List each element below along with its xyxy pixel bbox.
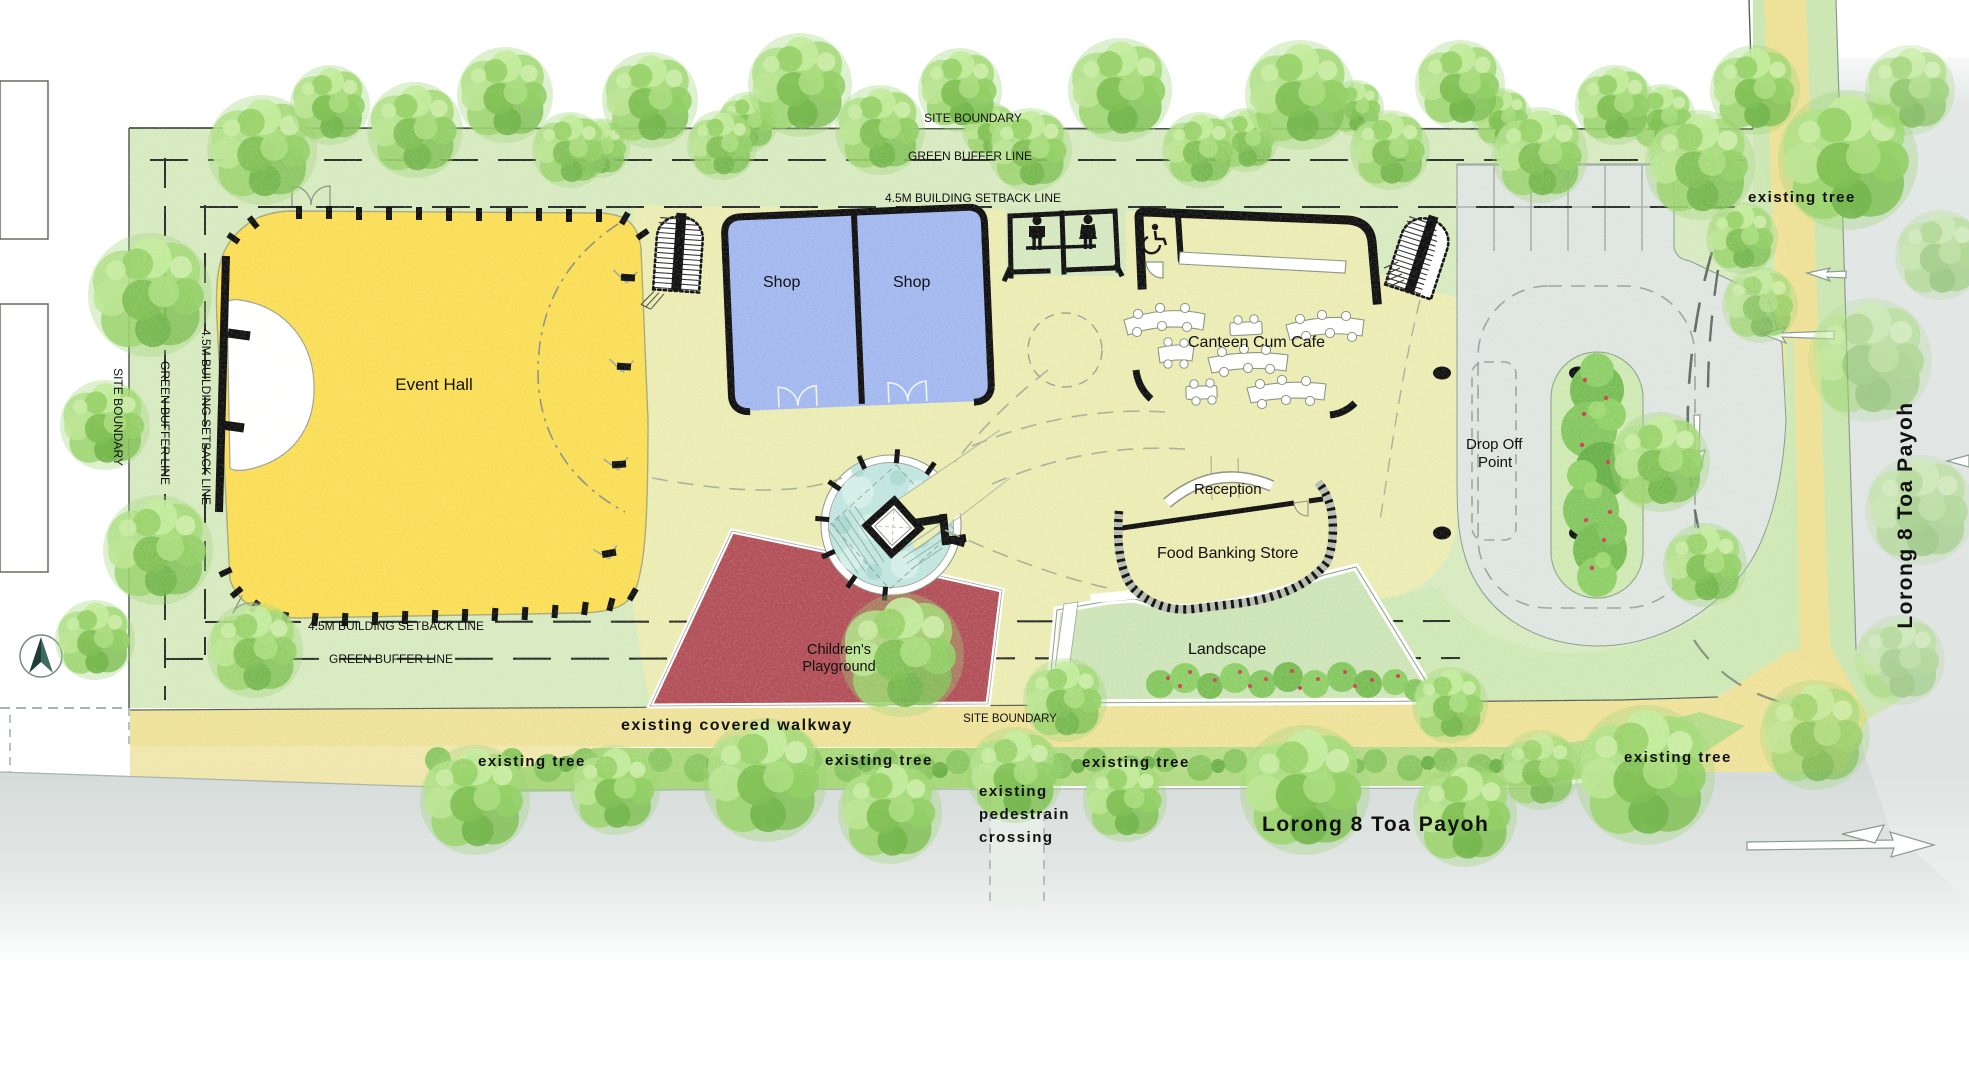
svg-text:Lorong 8 Toa Payoh: Lorong 8 Toa Payoh (1262, 813, 1489, 836)
svg-text:existing tree: existing tree (1624, 749, 1732, 766)
svg-text:Lorong 8 Toa Payoh: Lorong 8 Toa Payoh (1894, 401, 1917, 628)
svg-text:4.5M BUILDING SETBACK LINE: 4.5M BUILDING SETBACK LINE (885, 191, 1061, 205)
svg-text:Event Hall: Event Hall (395, 375, 472, 394)
svg-text:Food Banking Store: Food Banking Store (1157, 545, 1299, 562)
svg-text:Drop Off: Drop Off (1466, 436, 1523, 453)
svg-text:Point: Point (1478, 454, 1513, 471)
svg-text:existing tree: existing tree (1082, 754, 1190, 771)
svg-text:4.5M BUILDING SETBACK LINE: 4.5M BUILDING SETBACK LINE (308, 619, 484, 633)
svg-text:SITE BOUNDARY: SITE BOUNDARY (111, 368, 125, 466)
svg-text:Reception: Reception (1194, 481, 1262, 498)
svg-text:4.5M BUILDING SETBACK LINE: 4.5M BUILDING SETBACK LINE (199, 329, 213, 505)
svg-text:existing covered walkway: existing covered walkway (621, 717, 853, 734)
svg-text:existing tree: existing tree (1748, 189, 1856, 206)
svg-text:existing tree: existing tree (478, 753, 586, 770)
svg-text:Shop: Shop (763, 274, 800, 291)
svg-text:Playground: Playground (802, 659, 875, 675)
svg-text:SITE BOUNDARY: SITE BOUNDARY (924, 111, 1022, 125)
svg-text:pedestrain: pedestrain (979, 806, 1070, 823)
svg-text:Canteen Cum Cafe: Canteen Cum Cafe (1188, 334, 1325, 351)
svg-text:GREEN BUFFER LINE: GREEN BUFFER LINE (329, 652, 453, 666)
svg-text:existing tree: existing tree (825, 752, 933, 769)
svg-text:Shop: Shop (893, 274, 930, 291)
svg-text:crossing: crossing (979, 829, 1054, 846)
svg-text:Landscape: Landscape (1188, 641, 1266, 658)
svg-text:GREEN BUFFER LINE: GREEN BUFFER LINE (908, 149, 1032, 163)
svg-text:existing: existing (979, 783, 1048, 800)
svg-text:GREEN BUFFER LINE: GREEN BUFFER LINE (158, 361, 172, 485)
svg-text:SITE BOUNDARY: SITE BOUNDARY (963, 713, 1057, 725)
svg-text:Children's: Children's (807, 642, 871, 658)
